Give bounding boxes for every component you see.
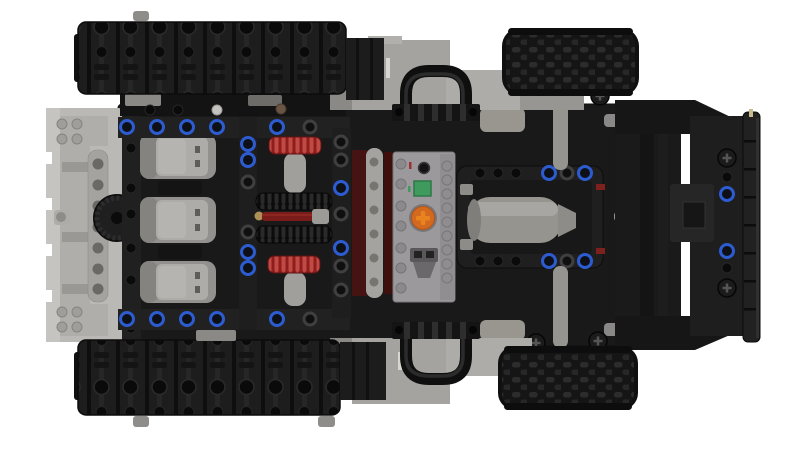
blue-pin bbox=[271, 121, 284, 134]
red-gear-top bbox=[269, 137, 321, 154]
handle-mount-hole bbox=[395, 326, 403, 334]
liftarm-hole bbox=[370, 158, 379, 167]
axle-joiner bbox=[312, 209, 329, 224]
dark-red-panel bbox=[352, 150, 367, 296]
track-step-line bbox=[356, 38, 359, 100]
track-step-line bbox=[366, 342, 369, 400]
track-step-block bbox=[346, 38, 384, 100]
battery-stud bbox=[396, 263, 406, 273]
motor-highlight bbox=[158, 202, 186, 238]
battery-stud bbox=[442, 245, 452, 255]
battery-dial-cross bbox=[421, 211, 426, 225]
bumper-beam-lower bbox=[88, 304, 108, 336]
blue-pin bbox=[151, 313, 164, 326]
blue-pin bbox=[181, 121, 194, 134]
front-hole bbox=[722, 172, 732, 182]
cab-rib bbox=[658, 120, 668, 332]
motor-rear-cap bbox=[140, 134, 158, 179]
motor-3 bbox=[140, 261, 216, 303]
bumper-stud bbox=[57, 119, 67, 129]
track-stud bbox=[133, 11, 149, 21]
row-hole bbox=[173, 105, 183, 115]
liftarm-hole bbox=[370, 254, 379, 263]
battery-stud bbox=[442, 259, 452, 269]
battery-stud bbox=[396, 201, 406, 211]
red-gear-bottom bbox=[268, 256, 320, 273]
motor-2 bbox=[140, 197, 216, 243]
steering-link-bottom bbox=[480, 320, 525, 340]
blue-pin bbox=[211, 313, 224, 326]
tire-sidewall bbox=[508, 89, 633, 96]
bumper-stud bbox=[57, 307, 67, 317]
motor-rear-cap bbox=[140, 261, 158, 303]
battery-stud bbox=[442, 217, 452, 227]
motor-vent bbox=[195, 272, 200, 279]
blue-pin bbox=[721, 245, 734, 258]
battery-stud bbox=[442, 189, 452, 199]
top-pin-beam bbox=[118, 117, 350, 138]
left-pin-column bbox=[239, 117, 257, 330]
blue-pin bbox=[242, 138, 255, 151]
handle-mount-rib bbox=[446, 322, 452, 339]
battery-stud bbox=[442, 175, 452, 185]
gray-ring-pin bbox=[335, 154, 347, 166]
beam-hole bbox=[126, 209, 136, 219]
gray-ring-pin bbox=[335, 260, 347, 272]
motor-coupler bbox=[158, 245, 202, 259]
liftarm-hole bbox=[93, 243, 104, 254]
black-gear-hub bbox=[111, 212, 123, 224]
motor-coupler bbox=[158, 181, 202, 195]
handle-mount-hole bbox=[469, 108, 477, 116]
blue-pin bbox=[211, 121, 224, 134]
battery-stud bbox=[442, 273, 452, 283]
row-hole bbox=[145, 105, 155, 115]
battery-power-button bbox=[419, 163, 430, 174]
blue-pin bbox=[242, 154, 255, 167]
left-black-beam-body bbox=[122, 106, 141, 344]
gray-ring-pin bbox=[561, 255, 573, 267]
blue-pin bbox=[579, 167, 592, 180]
shock-spring bbox=[256, 226, 332, 243]
gray-ring-pin bbox=[335, 208, 347, 220]
front-hole bbox=[722, 263, 732, 273]
steering-link-top bbox=[480, 108, 525, 132]
gray-ring-pin bbox=[242, 176, 254, 188]
beam-hole bbox=[126, 243, 136, 253]
bumper-notch bbox=[44, 198, 52, 210]
tan-detail bbox=[749, 109, 753, 117]
tire-sidewall bbox=[504, 346, 632, 353]
motor-1 bbox=[140, 134, 216, 179]
blue-pin bbox=[242, 262, 255, 275]
bumper-stud bbox=[72, 322, 82, 332]
track-bottom-left bbox=[74, 340, 386, 415]
battery-stud bbox=[442, 231, 452, 241]
gray-bracket-dark bbox=[248, 95, 282, 106]
blue-pin bbox=[121, 121, 134, 134]
beam-hole bbox=[126, 183, 136, 193]
actuator-cap bbox=[467, 199, 481, 241]
motor-vent bbox=[195, 209, 200, 216]
battery-stud bbox=[396, 179, 406, 189]
handle-mount-rib bbox=[404, 104, 410, 121]
gray-liftarm bbox=[366, 148, 383, 298]
brown-pin bbox=[276, 104, 286, 114]
bumper-slot bbox=[62, 284, 88, 294]
bumper-stud bbox=[57, 322, 67, 332]
tire-sidewall bbox=[508, 28, 633, 35]
red-axle bbox=[262, 212, 316, 221]
handle-mount-rib bbox=[460, 104, 466, 121]
bumper-stud bbox=[72, 119, 82, 129]
blue-pin bbox=[181, 313, 194, 326]
wheel-axle-bottom bbox=[553, 266, 568, 348]
gray-ring-pin bbox=[242, 226, 254, 238]
red-axle-highlight bbox=[262, 214, 316, 216]
handle-mount-rib bbox=[446, 104, 452, 121]
motor-vent bbox=[195, 286, 200, 293]
battery-connector-pin bbox=[426, 251, 434, 258]
blue-pin bbox=[721, 188, 734, 201]
bumper-inner-panel bbox=[60, 116, 90, 336]
beam-hole bbox=[126, 143, 136, 153]
gear-shaft-bottom bbox=[284, 272, 306, 306]
bumper-beam-upper bbox=[88, 116, 108, 146]
blue-pin bbox=[242, 246, 255, 259]
motor-highlight bbox=[158, 266, 186, 298]
tire-tread bbox=[502, 350, 634, 406]
bumper-slot bbox=[62, 232, 88, 242]
battery-stud bbox=[442, 203, 452, 213]
blue-pin bbox=[335, 182, 348, 195]
blue-pin bbox=[271, 313, 284, 326]
track-step-line bbox=[370, 38, 373, 100]
frame-hole bbox=[511, 256, 521, 266]
front-square-hole bbox=[683, 202, 705, 228]
actuator-highlight bbox=[468, 202, 558, 216]
track-tread bbox=[78, 340, 340, 415]
liftarm-hole bbox=[370, 182, 379, 191]
bumper-stud bbox=[72, 134, 82, 144]
bumper-knob-stud bbox=[56, 212, 66, 222]
liftarm-hole bbox=[370, 206, 379, 215]
bumper-slot bbox=[62, 162, 88, 172]
battery-connector-pin bbox=[414, 251, 422, 258]
handle-mount-rib bbox=[432, 322, 438, 339]
gray-ring-pin bbox=[304, 313, 316, 325]
tire-bottom-right bbox=[498, 346, 638, 410]
gray-bracket bbox=[196, 330, 236, 341]
handle-mount-hole bbox=[395, 108, 403, 116]
track-tread bbox=[78, 22, 346, 94]
liftarm-hole bbox=[370, 278, 379, 287]
gear-shaft-top bbox=[284, 153, 306, 193]
frame-peg bbox=[460, 184, 473, 195]
track-stud bbox=[318, 416, 335, 427]
blue-pin bbox=[335, 242, 348, 255]
liftarm-hole bbox=[93, 159, 104, 170]
handle-mount-rib bbox=[460, 322, 466, 339]
motor-vent bbox=[195, 160, 200, 167]
frame-hole bbox=[493, 168, 503, 178]
frame-peg bbox=[460, 239, 473, 250]
gray-ring-pin bbox=[304, 121, 316, 133]
blue-pin bbox=[121, 313, 134, 326]
frame-hole bbox=[511, 168, 521, 178]
battery-stud bbox=[442, 161, 452, 171]
bumper-stud bbox=[72, 307, 82, 317]
track-step-line bbox=[352, 342, 355, 400]
right-motor-frame bbox=[457, 166, 603, 268]
motor-rear-cap bbox=[140, 197, 158, 243]
handle-mount-rib bbox=[418, 322, 424, 339]
deck-slit bbox=[386, 58, 390, 78]
liftarm-hole bbox=[93, 264, 104, 275]
shock-spring bbox=[256, 193, 332, 210]
lego-technic-truck-render bbox=[0, 0, 800, 450]
bumper-stud bbox=[57, 134, 67, 144]
red-pin-mark bbox=[596, 248, 605, 254]
battery-green-led bbox=[414, 181, 431, 196]
handle-mount-rib bbox=[432, 104, 438, 121]
red-pin-mark bbox=[596, 184, 605, 190]
blue-pin bbox=[543, 255, 556, 268]
liftarm-hole bbox=[93, 180, 104, 191]
tire-sidewall bbox=[504, 403, 632, 410]
battery-red-mark bbox=[409, 162, 412, 169]
frame-hole bbox=[475, 256, 485, 266]
battery-stud bbox=[396, 243, 406, 253]
track-top-left bbox=[74, 22, 384, 100]
tire-top-right bbox=[502, 28, 639, 96]
battery-stud bbox=[396, 159, 406, 169]
beam-hole bbox=[126, 275, 136, 285]
left-black-beam bbox=[122, 106, 141, 344]
gray-ring-pin bbox=[335, 284, 347, 296]
dark-red-section bbox=[352, 148, 394, 298]
motor-vent bbox=[195, 146, 200, 153]
handle-mount-rib bbox=[404, 322, 410, 339]
frame-hole bbox=[475, 168, 485, 178]
handle-mount-hole bbox=[469, 326, 477, 334]
liftarm-hole bbox=[93, 284, 104, 295]
motor-highlight bbox=[158, 139, 186, 174]
blue-pin bbox=[579, 255, 592, 268]
front-screw bbox=[718, 279, 736, 297]
bumper-edge-highlight bbox=[756, 118, 759, 338]
render-canvas bbox=[0, 0, 800, 450]
frame-hole bbox=[493, 256, 503, 266]
bumper-notch bbox=[44, 290, 52, 302]
liftarm-hole bbox=[370, 230, 379, 239]
upper-connector-row bbox=[120, 92, 346, 116]
blue-pin bbox=[151, 121, 164, 134]
battery-green-mark bbox=[408, 186, 411, 192]
track-stud bbox=[133, 416, 149, 427]
gray-ring-pin bbox=[335, 136, 347, 148]
track-step-block bbox=[340, 342, 386, 400]
blue-pin bbox=[543, 167, 556, 180]
bottom-pin-beam bbox=[118, 309, 350, 330]
battery-stud bbox=[396, 221, 406, 231]
light-pin bbox=[212, 105, 222, 115]
motor-vent bbox=[195, 224, 200, 231]
bumper-notch bbox=[44, 244, 52, 256]
battery-box bbox=[393, 152, 455, 302]
tire-tread bbox=[506, 32, 635, 92]
front-screw bbox=[718, 149, 736, 167]
cab-rib bbox=[640, 112, 654, 340]
battery-stud bbox=[396, 283, 406, 293]
right-pin-column bbox=[332, 128, 351, 318]
bumper-notch bbox=[44, 152, 52, 164]
handle-mount-rib bbox=[418, 104, 424, 121]
gray-bracket bbox=[125, 94, 161, 106]
